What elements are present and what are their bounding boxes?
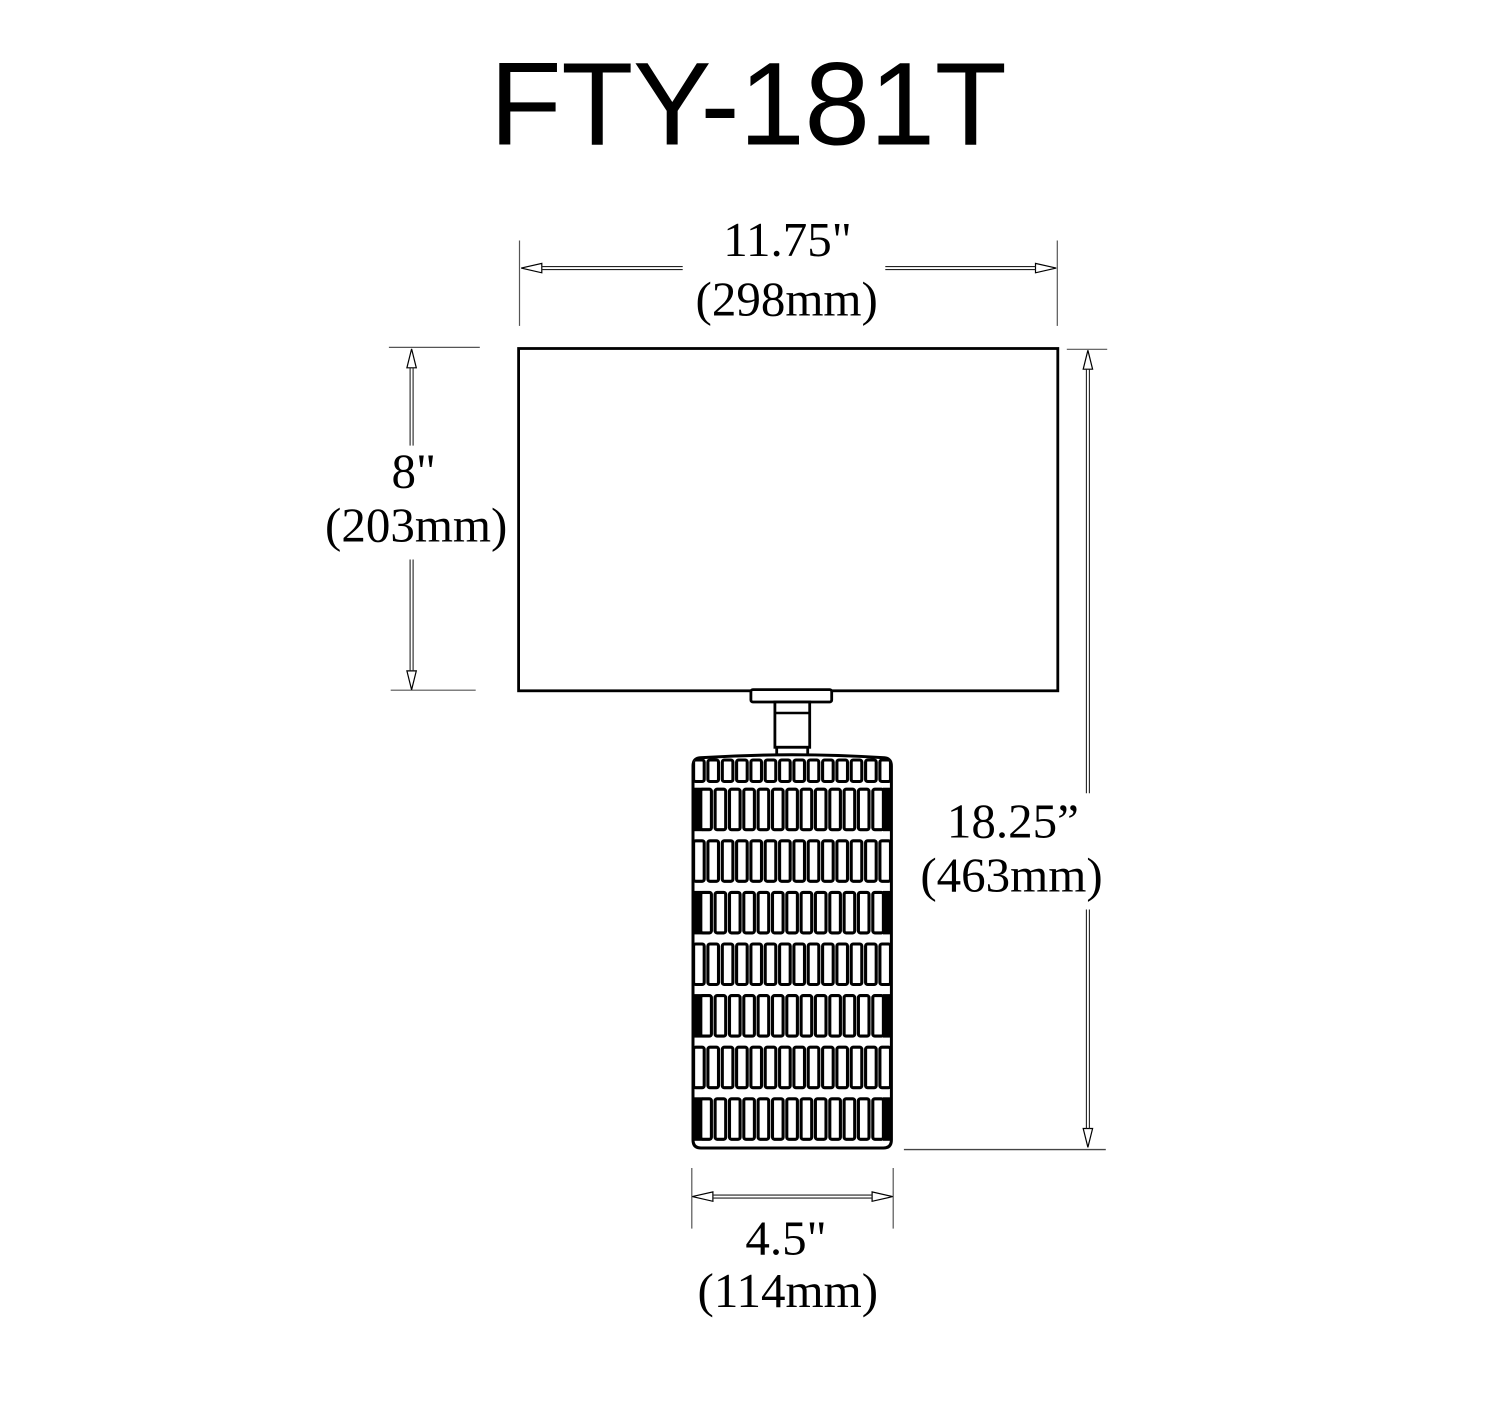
svg-text:11.75": 11.75" [723,212,851,267]
svg-text:4.5": 4.5" [745,1210,826,1265]
svg-text:(114mm): (114mm) [698,1263,879,1318]
svg-text:FTY-181T: FTY-181T [490,38,1007,170]
svg-text:18.25”: 18.25” [947,793,1079,848]
svg-text:(203mm): (203mm) [325,498,507,553]
svg-text:(463mm): (463mm) [920,847,1102,902]
svg-text:(298mm): (298mm) [696,271,878,326]
svg-text:8": 8" [391,443,436,498]
